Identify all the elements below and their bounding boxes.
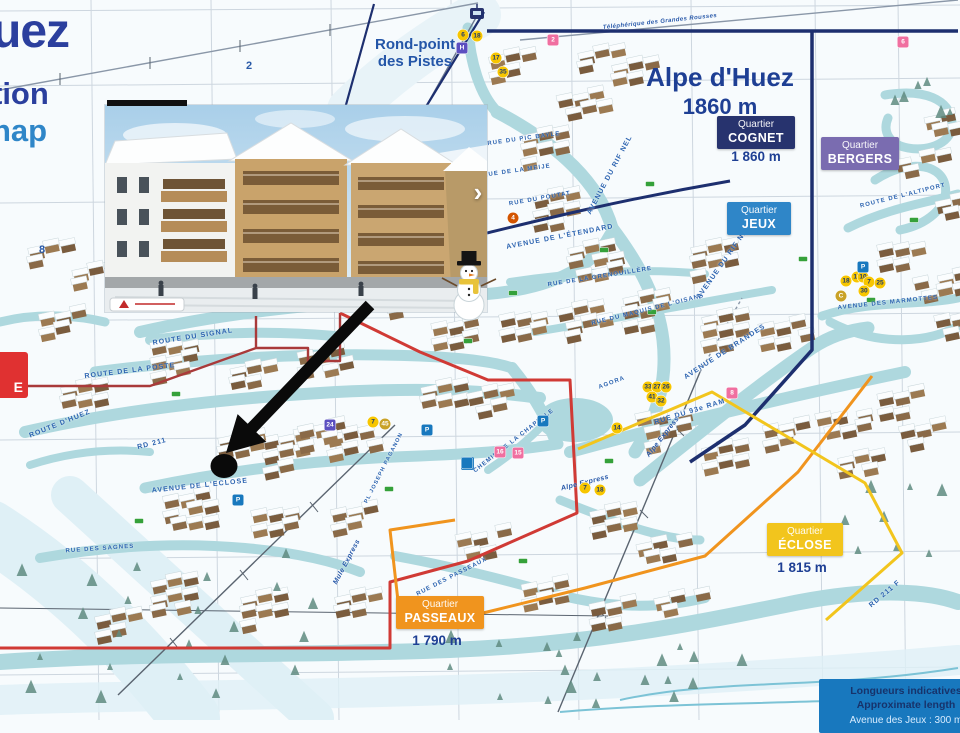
map-marker-badge: P <box>233 495 244 506</box>
quartier-passeaux-label: Quartier <box>402 599 478 611</box>
map-marker-badge: 16 <box>495 447 506 458</box>
map-marker-badge: 8 <box>727 388 738 399</box>
map-marker-badge: 24 <box>325 420 336 431</box>
map-marker-badge: 35 <box>498 67 509 78</box>
map-marker-badge: 17 <box>491 53 502 64</box>
rondpoint-line2: des Pistes <box>340 53 490 70</box>
quartier-jeux-box: Quartier JEUX <box>727 202 791 235</box>
legend-line2: Approximate length <box>827 699 960 713</box>
map-marker-badge <box>462 458 473 469</box>
quartier-passeaux-box: Quartier PASSEAUX <box>396 596 484 629</box>
map-marker-badge: 18 <box>595 485 606 496</box>
map-marker-badge: 6 <box>898 37 909 48</box>
map-marker-badge: 7 <box>580 483 591 494</box>
quartier-bergers-label: Quartier <box>827 140 893 152</box>
map-marker-badge: 15 <box>513 448 524 459</box>
edge-sign-text: E <box>14 379 23 395</box>
site-logo-fragment: uez tion nap <box>0 8 69 146</box>
quartier-eclose-box: Quartier ÉCLOSE <box>767 523 843 556</box>
quartier-bergers-box: Quartier BERGERS <box>821 137 899 170</box>
quartier-eclose-name: ÉCLOSE <box>773 538 837 553</box>
map-marker-badge: 26 <box>661 382 672 393</box>
photo-top-bar <box>107 100 187 106</box>
map-title: Alpe d'Huez 1860 m <box>620 62 820 120</box>
map-marker-badge: P <box>422 425 433 436</box>
map-title-name: Alpe d'Huez <box>620 62 820 93</box>
property-photo-inset <box>105 105 487 312</box>
quartier-jeux-name: JEUX <box>733 217 785 232</box>
map-marker-badge: 4 <box>508 213 519 224</box>
quartier-bergers-name: BERGERS <box>827 152 893 167</box>
quartier-cognet-label: Quartier <box>723 119 789 131</box>
map-marker-badge: 25 <box>875 278 886 289</box>
map-marker-badge: 32 <box>656 396 667 407</box>
legend-line1: Longueurs indicatives <box>827 685 960 699</box>
map-marker-badge: 18 <box>841 276 852 287</box>
quartier-passeaux-name: PASSEAUX <box>402 611 478 626</box>
quartier-cognet-box: Quartier COGNET <box>717 116 795 149</box>
quartier-eclose-elevation: 1 815 m <box>763 560 841 575</box>
logo-line2: tion <box>0 78 69 109</box>
logo-line3: nap <box>0 115 69 146</box>
edge-sign-fragment: E <box>0 352 28 398</box>
map-marker-badge: 2 <box>548 35 559 46</box>
rondpoint-label: Rond-point des Pistes <box>340 36 490 71</box>
quartier-jeux-label: Quartier <box>733 205 785 217</box>
map-marker-badge: P <box>858 262 869 273</box>
next-photo-arrow-icon[interactable]: › <box>468 180 488 206</box>
quartier-passeaux-elevation: 1 790 m <box>398 633 476 648</box>
map-marker-badge: 14 <box>612 423 623 434</box>
map-marker-badge: 30 <box>859 286 870 297</box>
map-marker-badge: C <box>836 291 847 302</box>
map-marker-badge: 45 <box>380 419 391 430</box>
quartier-eclose-label: Quartier <box>773 526 837 538</box>
grid-number: 8 <box>39 244 45 256</box>
map-marker-badge: 7 <box>368 417 379 428</box>
legend-box: Longueurs indicatives Approximate length… <box>819 679 960 733</box>
map-marker-badge: P <box>538 416 549 427</box>
logo-line1: uez <box>0 8 69 56</box>
grid-number: 2 <box>246 60 252 72</box>
quartier-cognet-elevation: 1 860 m <box>717 149 795 164</box>
photo-rendering <box>105 105 487 312</box>
quartier-cognet-name: COGNET <box>723 131 789 146</box>
legend-line3: Avenue des Jeux : 300 m <box>827 714 960 727</box>
rondpoint-line1: Rond-point <box>340 36 490 53</box>
resort-map: ROUTE DU SIGNALROUTE DE LA POSTEROUTE D'… <box>0 0 960 720</box>
